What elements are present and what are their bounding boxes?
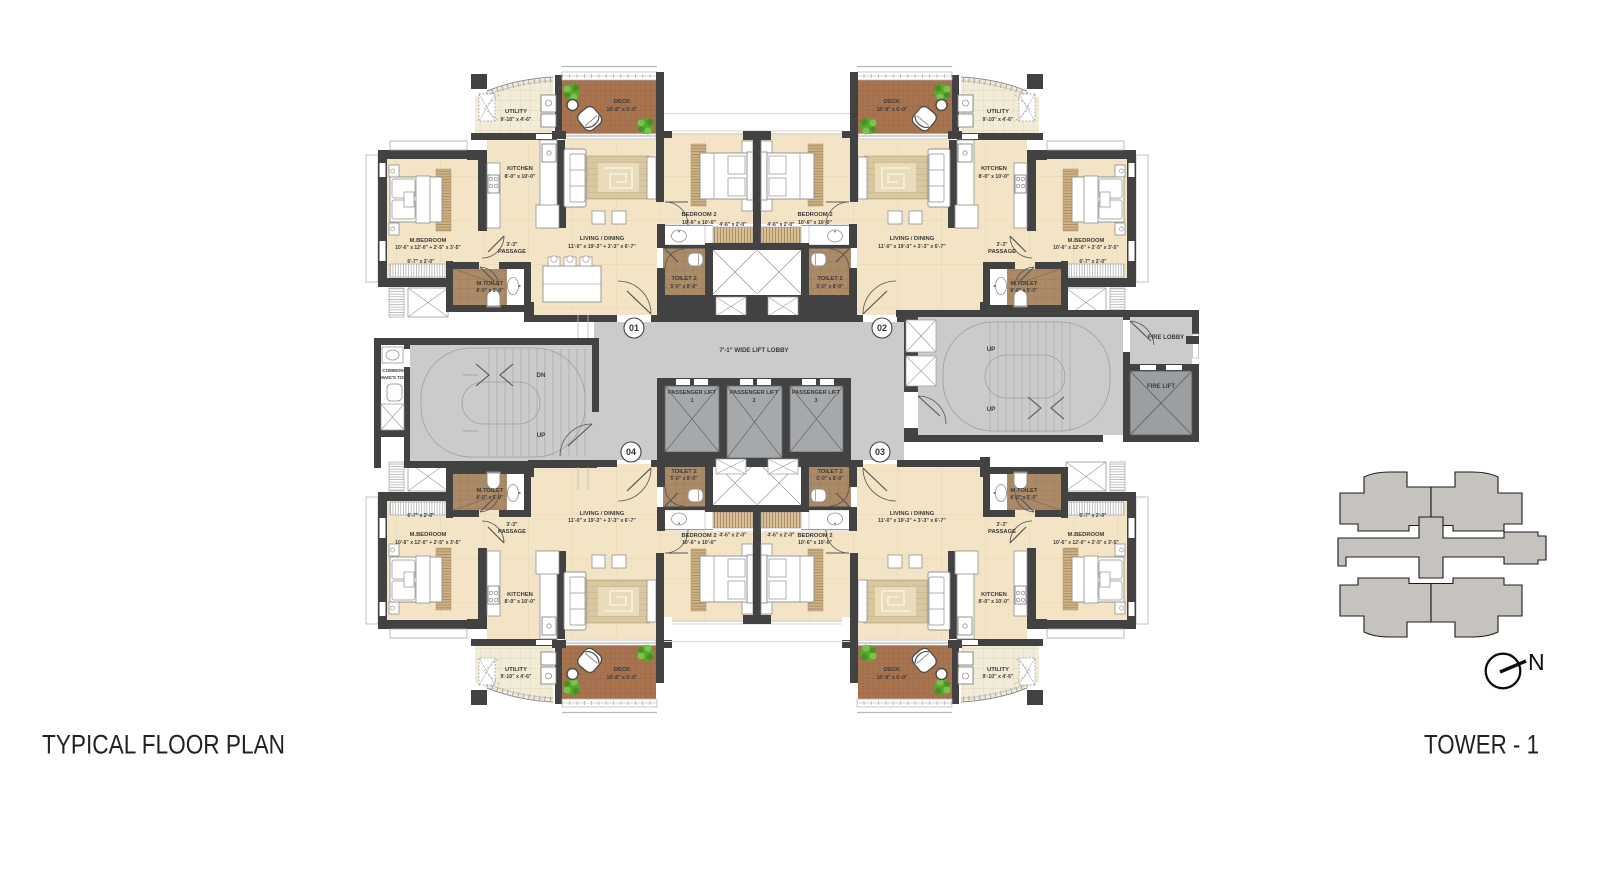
- svg-text:6'-7" x 2'-0": 6'-7" x 2'-0": [1079, 513, 1107, 519]
- svg-text:10'-8" x 6'-0": 10'-8" x 6'-0": [876, 107, 908, 113]
- svg-text:9'-10" x 4'-6": 9'-10" x 4'-6": [500, 674, 532, 680]
- svg-text:2: 2: [752, 398, 755, 404]
- svg-text:8'-0" x 5'-0": 8'-0" x 5'-0": [476, 495, 504, 501]
- svg-text:9'-10" x 4'-6": 9'-10" x 4'-6": [982, 117, 1014, 123]
- svg-text:10'-6" x 10'-0": 10'-6" x 10'-0": [682, 220, 716, 226]
- svg-text:PASSAGE: PASSAGE: [988, 249, 1016, 255]
- svg-text:3'-3": 3'-3": [996, 242, 1008, 248]
- svg-text:TOILET 2: TOILET 2: [817, 469, 842, 475]
- svg-text:M.BEDROOM: M.BEDROOM: [1068, 532, 1105, 538]
- svg-text:TOILET 2: TOILET 2: [817, 276, 842, 282]
- svg-text:4'-6" x 2'-0": 4'-6" x 2'-0": [767, 222, 795, 228]
- svg-text:LIVING / DINING: LIVING / DINING: [580, 511, 625, 517]
- svg-text:TOWER - 1: TOWER - 1: [1424, 730, 1539, 760]
- svg-text:UTILITY: UTILITY: [505, 667, 527, 673]
- svg-text:3'-3": 3'-3": [506, 242, 518, 248]
- svg-text:BEDROOM 2: BEDROOM 2: [797, 533, 832, 539]
- svg-text:UTILITY: UTILITY: [987, 667, 1009, 673]
- svg-text:8'-0" x 10'-0": 8'-0" x 10'-0": [978, 174, 1010, 180]
- svg-text:DECK: DECK: [614, 667, 631, 673]
- svg-text:10'-8" x 6'-0": 10'-8" x 6'-0": [606, 107, 638, 113]
- svg-text:BEDROOM 2: BEDROOM 2: [681, 212, 716, 218]
- svg-text:PASSAGE: PASSAGE: [498, 529, 526, 535]
- svg-text:PASSENGER LIFT: PASSENGER LIFT: [730, 390, 779, 396]
- svg-text:M.TOILET: M.TOILET: [477, 281, 504, 287]
- svg-text:1: 1: [690, 398, 693, 404]
- svg-text:M.TOILET: M.TOILET: [477, 488, 504, 494]
- svg-text:UP: UP: [987, 406, 996, 413]
- svg-text:7'-1" WIDE LIFT LOBBY: 7'-1" WIDE LIFT LOBBY: [719, 347, 789, 354]
- svg-text:03: 03: [875, 447, 885, 457]
- svg-text:5'-0" x 8'-0": 5'-0" x 8'-0": [670, 476, 698, 482]
- svg-text:8'-0" x 10'-0": 8'-0" x 10'-0": [504, 174, 536, 180]
- svg-text:M.BEDROOM: M.BEDROOM: [410, 238, 447, 244]
- svg-text:10'-6" x 12'-0" + 2'-5" x 3'-5: 10'-6" x 12'-0" + 2'-5" x 3'-5": [1053, 540, 1119, 546]
- svg-text:10'-6" x 10'-0": 10'-6" x 10'-0": [798, 540, 832, 546]
- svg-text:8'-0" x 5'-0": 8'-0" x 5'-0": [1010, 495, 1038, 501]
- svg-text:5'-0" x 8'-0": 5'-0" x 8'-0": [670, 284, 698, 290]
- svg-text:BEDROOM 2: BEDROOM 2: [797, 212, 832, 218]
- svg-text:LIVING / DINING: LIVING / DINING: [890, 511, 935, 517]
- svg-text:LIVING / DINING: LIVING / DINING: [580, 236, 625, 242]
- svg-text:TOILET 2: TOILET 2: [671, 469, 696, 475]
- svg-text:M.BEDROOM: M.BEDROOM: [1068, 238, 1105, 244]
- svg-text:11'-0" x 19'-3" + 3'-3" x 6'-7: 11'-0" x 19'-3" + 3'-3" x 6'-7": [568, 518, 636, 524]
- svg-text:4'-6" x 2'-0": 4'-6" x 2'-0": [719, 222, 747, 228]
- svg-text:04: 04: [626, 447, 636, 457]
- svg-text:6'-7" x 2'-0": 6'-7" x 2'-0": [407, 513, 435, 519]
- svg-text:KITCHEN: KITCHEN: [507, 592, 533, 598]
- svg-text:BEDROOM 2: BEDROOM 2: [681, 533, 716, 539]
- svg-text:KITCHEN: KITCHEN: [981, 166, 1007, 172]
- svg-text:DECK: DECK: [884, 99, 901, 105]
- svg-text:UTILITY: UTILITY: [987, 109, 1009, 115]
- svg-text:11'-0" x 19'-3" + 3'-3" x 6'-7: 11'-0" x 19'-3" + 3'-3" x 6'-7": [878, 518, 946, 524]
- svg-text:3'-3": 3'-3": [996, 522, 1008, 528]
- svg-text:DN: DN: [537, 372, 546, 379]
- svg-text:UP: UP: [537, 432, 546, 439]
- svg-text:9'-10" x 4'-6": 9'-10" x 4'-6": [982, 674, 1014, 680]
- svg-text:M.TOILET: M.TOILET: [1011, 488, 1038, 494]
- svg-text:8'-0" x 10'-0": 8'-0" x 10'-0": [978, 599, 1010, 605]
- svg-text:KITCHEN: KITCHEN: [507, 166, 533, 172]
- svg-text:5'-0" x 8'-0": 5'-0" x 8'-0": [816, 476, 844, 482]
- svg-text:N: N: [1528, 649, 1545, 675]
- svg-text:UP: UP: [987, 346, 996, 353]
- svg-text:4'-6" x 2'-0": 4'-6" x 2'-0": [767, 533, 795, 539]
- svg-text:9'-10" x 4'-6": 9'-10" x 4'-6": [500, 117, 532, 123]
- svg-text:10'-6" x 12'-0" + 2'-5" x 3'-5: 10'-6" x 12'-0" + 2'-5" x 3'-5": [1053, 245, 1119, 251]
- svg-text:MAID'S TOI.: MAID'S TOI.: [380, 375, 406, 380]
- svg-text:10'-6" x 10'-0": 10'-6" x 10'-0": [682, 540, 716, 546]
- svg-text:PASSENGER LIFT: PASSENGER LIFT: [792, 390, 841, 396]
- svg-text:PASSAGE: PASSAGE: [498, 249, 526, 255]
- svg-text:5'-0" x 8'-0": 5'-0" x 8'-0": [816, 284, 844, 290]
- svg-text:8'-0" x 5'-0": 8'-0" x 5'-0": [476, 288, 504, 294]
- svg-text:UTILITY: UTILITY: [505, 109, 527, 115]
- svg-text:8'-0" x 5'-0": 8'-0" x 5'-0": [1010, 288, 1038, 294]
- svg-text:FIRE LIFT: FIRE LIFT: [1147, 384, 1175, 390]
- svg-text:8'-0" x 10'-0": 8'-0" x 10'-0": [504, 599, 536, 605]
- svg-text:3: 3: [814, 398, 817, 404]
- svg-text:10'-6" x 12'-0" + 2'-5" x 3'-5: 10'-6" x 12'-0" + 2'-5" x 3'-5": [395, 245, 461, 251]
- svg-text:10'-8" x 6'-0": 10'-8" x 6'-0": [876, 675, 908, 681]
- svg-text:01: 01: [629, 323, 639, 333]
- svg-text:TOILET 2: TOILET 2: [671, 276, 696, 282]
- svg-text:M.BEDROOM: M.BEDROOM: [410, 532, 447, 538]
- svg-text:02: 02: [877, 323, 887, 333]
- svg-text:LIVING / DINING: LIVING / DINING: [890, 236, 935, 242]
- svg-text:3'-3": 3'-3": [506, 522, 518, 528]
- svg-text:COMMON: COMMON: [382, 368, 404, 373]
- svg-text:11'-0" x 19'-3" + 3'-3" x 6'-7: 11'-0" x 19'-3" + 3'-3" x 6'-7": [878, 244, 946, 250]
- svg-text:6'-7" x 2'-0": 6'-7" x 2'-0": [1079, 259, 1107, 265]
- svg-text:6'-7" x 2'-0": 6'-7" x 2'-0": [407, 259, 435, 265]
- svg-text:DECK: DECK: [614, 99, 631, 105]
- svg-text:11'-0" x 19'-3" + 3'-3" x 6'-7: 11'-0" x 19'-3" + 3'-3" x 6'-7": [568, 244, 636, 250]
- svg-text:DECK: DECK: [884, 667, 901, 673]
- svg-text:4'-6" x 2'-0": 4'-6" x 2'-0": [719, 533, 747, 539]
- svg-text:M.TOILET: M.TOILET: [1011, 281, 1038, 287]
- svg-text:PASSENGER LIFT: PASSENGER LIFT: [668, 390, 717, 396]
- svg-text:FIRE LOBBY: FIRE LOBBY: [1148, 335, 1184, 341]
- svg-text:PASSAGE: PASSAGE: [988, 529, 1016, 535]
- svg-text:10'-6" x 12'-0" + 2'-5" x 3'-5: 10'-6" x 12'-0" + 2'-5" x 3'-5": [395, 540, 461, 546]
- svg-text:KITCHEN: KITCHEN: [981, 592, 1007, 598]
- svg-text:10'-6" x 10'-0": 10'-6" x 10'-0": [798, 220, 832, 226]
- svg-text:10'-8" x 6'-0": 10'-8" x 6'-0": [606, 675, 638, 681]
- svg-text:TYPICAL FLOOR PLAN: TYPICAL FLOOR PLAN: [42, 730, 285, 760]
